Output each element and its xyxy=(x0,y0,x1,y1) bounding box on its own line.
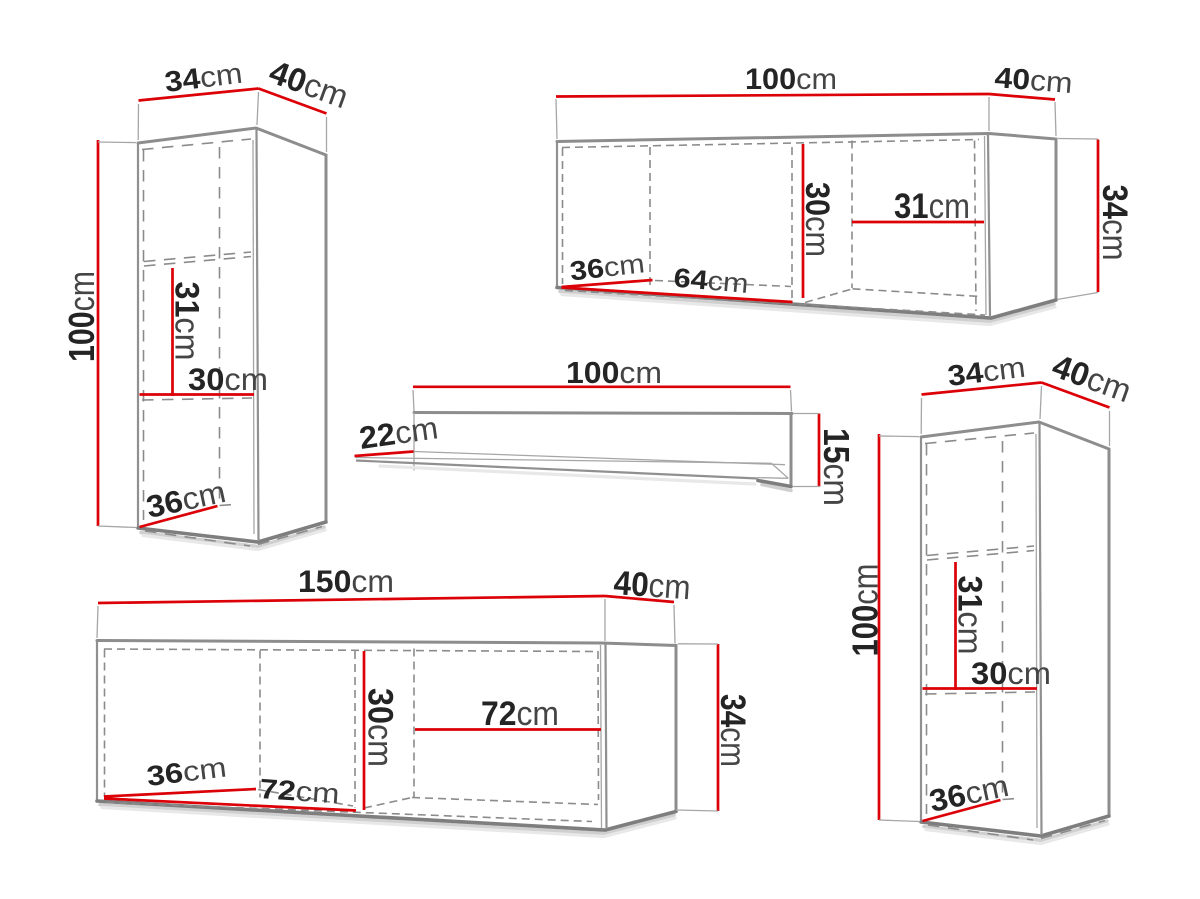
svg-text:72cm: 72cm xyxy=(259,773,341,810)
svg-text:31cm: 31cm xyxy=(951,576,989,655)
svg-text:100cm: 100cm xyxy=(61,271,102,362)
svg-text:34cm: 34cm xyxy=(1095,185,1135,261)
svg-text:15cm: 15cm xyxy=(816,428,857,506)
svg-text:34cm: 34cm xyxy=(946,352,1027,393)
svg-text:150cm: 150cm xyxy=(298,563,394,599)
svg-text:72cm: 72cm xyxy=(481,695,559,733)
svg-text:34cm: 34cm xyxy=(713,694,753,767)
svg-text:36cm: 36cm xyxy=(145,751,228,792)
svg-text:30cm: 30cm xyxy=(798,182,836,257)
svg-text:31cm: 31cm xyxy=(894,187,970,226)
svg-text:100cm: 100cm xyxy=(745,63,837,96)
svg-text:22cm: 22cm xyxy=(357,409,440,456)
svg-text:40cm: 40cm xyxy=(993,62,1073,100)
svg-text:40cm: 40cm xyxy=(612,564,691,607)
svg-text:30cm: 30cm xyxy=(361,688,401,767)
svg-text:36cm: 36cm xyxy=(926,768,1012,819)
svg-text:100cm: 100cm xyxy=(845,564,886,657)
svg-text:100cm: 100cm xyxy=(566,355,662,390)
svg-text:64cm: 64cm xyxy=(672,263,749,299)
svg-text:36cm: 36cm xyxy=(143,474,229,525)
svg-text:30cm: 30cm xyxy=(971,655,1051,691)
svg-text:31cm: 31cm xyxy=(168,282,206,361)
svg-text:34cm: 34cm xyxy=(163,58,244,99)
svg-text:30cm: 30cm xyxy=(188,361,268,397)
